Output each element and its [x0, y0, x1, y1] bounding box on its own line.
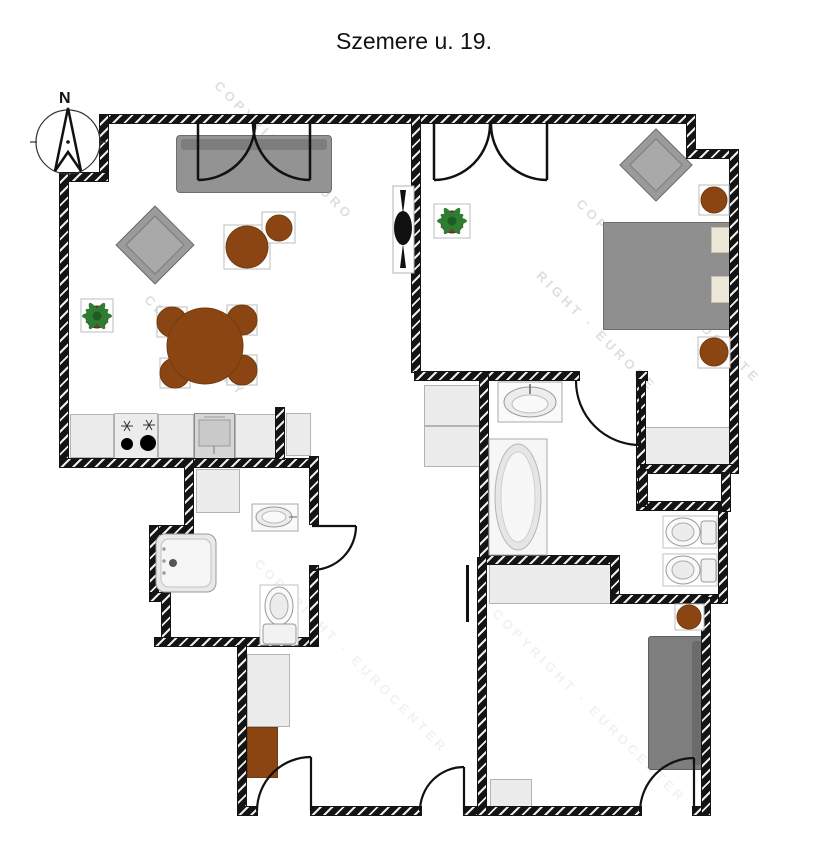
plan-overlay: [0, 0, 828, 844]
toilet-icon: [260, 585, 298, 645]
tv-icon: [393, 186, 414, 273]
door-swing: [312, 526, 356, 570]
side-table: [266, 215, 292, 241]
coffee-table: [226, 226, 268, 268]
stool: [699, 185, 729, 215]
bathtub-icon: [489, 439, 547, 555]
kitchen-sink-icon: [199, 417, 230, 454]
washbasin-icon: [252, 504, 298, 531]
entry-door-swing: [257, 757, 311, 811]
stool: [675, 604, 704, 630]
floor-plan: Szemere u. 19. N COPYRIGHT · EURO CENTER…: [0, 0, 828, 844]
french-door: [198, 121, 310, 180]
potted-plant-icon: [434, 204, 470, 238]
stove-burners: [121, 420, 156, 451]
north-arrow-icon: [30, 108, 106, 174]
toilet-icon: [663, 516, 717, 548]
washbasin-icon: [498, 382, 562, 422]
potted-plant-icon: [81, 299, 113, 332]
dining-set: [157, 305, 257, 388]
door-swing: [420, 767, 464, 811]
door-swing: [576, 381, 640, 447]
stool: [698, 337, 730, 368]
french-door: [434, 121, 547, 180]
door-swing: [640, 758, 694, 812]
dining-table: [167, 308, 243, 384]
shower-icon: [156, 534, 216, 592]
coffee-table-set: [224, 212, 295, 269]
toilet-icon: [663, 554, 717, 586]
